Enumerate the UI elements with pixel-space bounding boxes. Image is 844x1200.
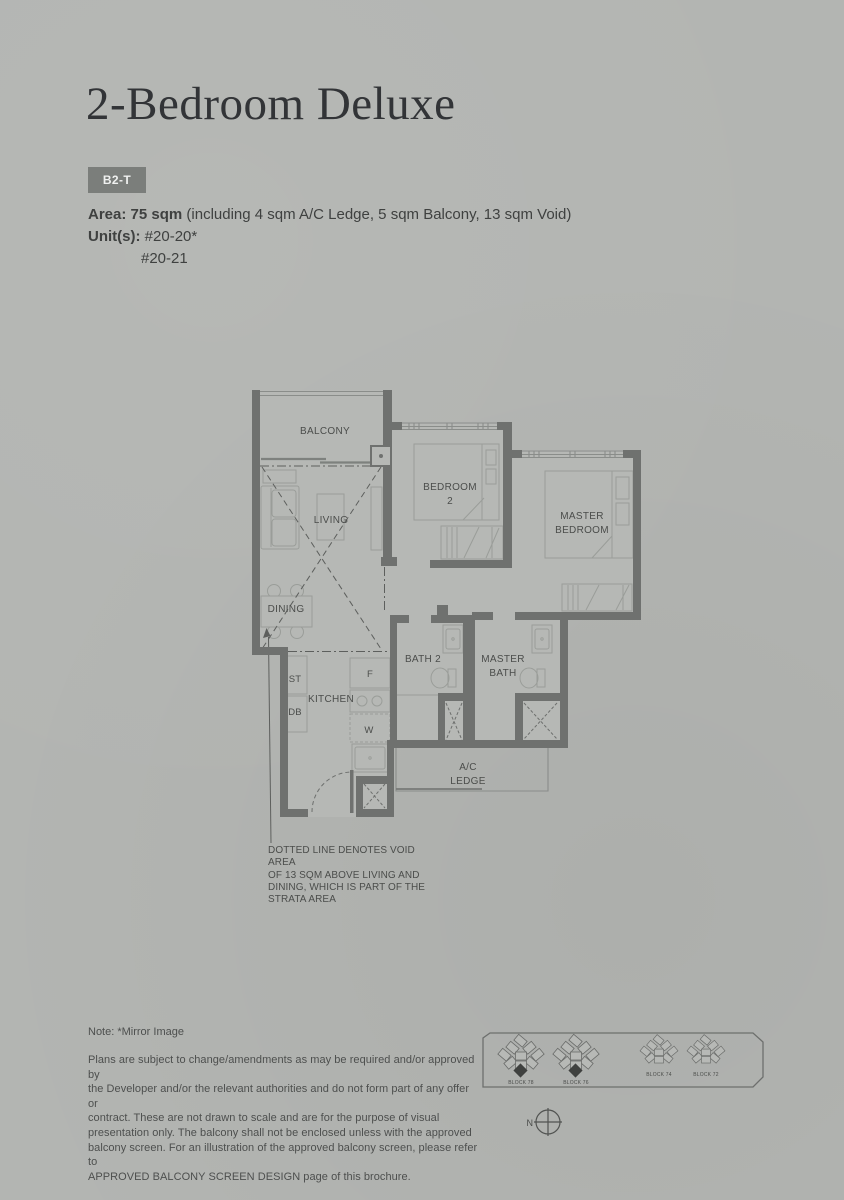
disclaimer-text: Plans are subject to change/amendments a… — [88, 1053, 478, 1184]
area-label: Area: — [88, 206, 126, 223]
label-db: DB — [288, 707, 302, 718]
block-72-cluster — [687, 1035, 725, 1064]
mirror-image-note: Note: *Mirror Image — [88, 1026, 184, 1038]
unit-number-2: #20-21 — [141, 248, 188, 269]
label-kitchen: KITCHEN — [308, 694, 354, 705]
area-line: Area: 75 sqm (including 4 sqm A/C Ledge,… — [88, 204, 571, 225]
label-master-line1: MASTER — [560, 511, 603, 522]
block-74-label: BLOCK 74 — [646, 1072, 672, 1078]
label-fridge: F — [367, 669, 373, 680]
block-74-cluster — [640, 1035, 678, 1064]
label-master-line2: BEDROOM — [555, 525, 609, 536]
label-living: LIVING — [314, 515, 349, 526]
block-78-cluster — [498, 1034, 544, 1077]
label-dining: DINING — [268, 604, 305, 615]
label-master-bath-line1: MASTER — [481, 654, 524, 665]
block-78-label: BLOCK 78 — [508, 1080, 534, 1086]
floor-plan: BALCONY LIVING DINING BEDROOM 2 MASTER B… — [240, 370, 670, 850]
label-bedroom2-line1: BEDROOM — [423, 482, 477, 493]
void-leader-line — [269, 637, 272, 843]
brochure-page: 2-Bedroom Deluxe B2-T Area: 75 sqm (incl… — [0, 0, 844, 1200]
units-line: Unit(s): #20-20* — [88, 226, 197, 247]
block-76-label: BLOCK 76 — [563, 1080, 589, 1086]
block-76-cluster — [553, 1034, 599, 1077]
label-bath2: BATH 2 — [405, 654, 441, 665]
area-value: 75 sqm — [131, 206, 183, 223]
unit-number-1: #20-20* — [145, 228, 198, 245]
label-ac-ledge-line1: A/C — [459, 762, 477, 773]
void-note: DOTTED LINE DENOTES VOID AREA OF 13 SQM … — [268, 845, 443, 906]
page-title: 2-Bedroom Deluxe — [86, 80, 456, 129]
unit-type-badge: B2-T — [88, 167, 146, 193]
balcony-column — [371, 446, 391, 466]
north-label: N — [527, 1118, 534, 1128]
label-store: ST — [289, 674, 302, 685]
label-master-bath-line2: BATH — [489, 668, 516, 679]
block-72-label: BLOCK 72 — [693, 1072, 719, 1078]
label-balcony: BALCONY — [300, 426, 350, 437]
label-bedroom2-line2: 2 — [447, 496, 453, 507]
units-label: Unit(s): — [88, 228, 141, 245]
label-ac-ledge-line2: LEDGE — [450, 776, 485, 787]
site-key-plan: BLOCK 78 BLOCK 76 BLOCK 74 BLOCK 72 N — [470, 1015, 790, 1150]
north-arrow-icon — [534, 1108, 562, 1136]
area-detail: (including 4 sqm A/C Ledge, 5 sqm Balcon… — [186, 206, 571, 223]
label-washer: W — [364, 725, 373, 736]
